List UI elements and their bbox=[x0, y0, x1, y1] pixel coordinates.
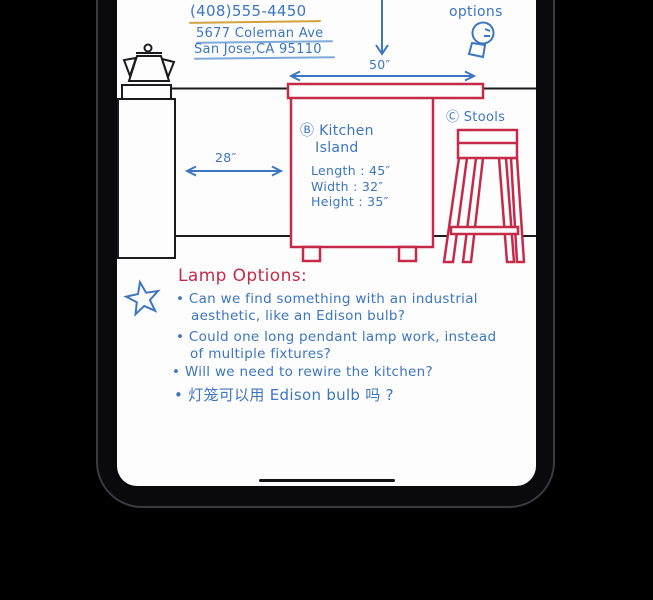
island-dim-width: Width : 32″ bbox=[311, 179, 390, 195]
island-name-line1: Kitchen bbox=[319, 123, 374, 139]
note-line-2: aesthetic, like an Edison bulb? bbox=[191, 308, 405, 324]
island-width-label: 50″ bbox=[369, 57, 390, 72]
island-name-line2: Island bbox=[300, 140, 374, 156]
address-line-2: San Jose,CA 95110 bbox=[194, 42, 322, 57]
island-tag: Ⓑ bbox=[300, 123, 314, 139]
phone-number: (408)555-4450 bbox=[190, 2, 306, 20]
note-line-3: • Could one long pendant lamp work, inst… bbox=[176, 329, 496, 345]
island-dim-height: Height : 35″ bbox=[311, 194, 390, 210]
stools-tag: Ⓒ bbox=[446, 110, 459, 125]
gap-label: 28″ bbox=[215, 150, 236, 165]
note-line-5: • Will we need to rewire the kitchen? bbox=[172, 364, 433, 380]
island-dim-length: Length : 45″ bbox=[311, 163, 390, 179]
desktop-background: { "device": { "home_indicator": "home-in… bbox=[0, 0, 653, 600]
address-line-1: 5677 Coleman Ave bbox=[196, 26, 323, 41]
island-dimensions: Length : 45″ Width : 32″ Height : 35″ bbox=[311, 163, 390, 210]
note-line-1: • Can we find something with an industri… bbox=[176, 291, 478, 307]
stools-label: Ⓒ Stools bbox=[446, 106, 505, 125]
island-label: Ⓑ Kitchen Island bbox=[300, 120, 374, 156]
home-indicator[interactable] bbox=[259, 479, 395, 482]
stools-name: Stools bbox=[464, 110, 505, 125]
options-note: options bbox=[449, 4, 503, 20]
note-line-4: of multiple fixtures? bbox=[190, 346, 331, 362]
notes-heading: Lamp Options: bbox=[178, 266, 307, 286]
note-line-6: • 灯笼可以用 Edison bulb 吗 ? bbox=[174, 384, 394, 405]
note-canvas[interactable] bbox=[117, 0, 536, 486]
